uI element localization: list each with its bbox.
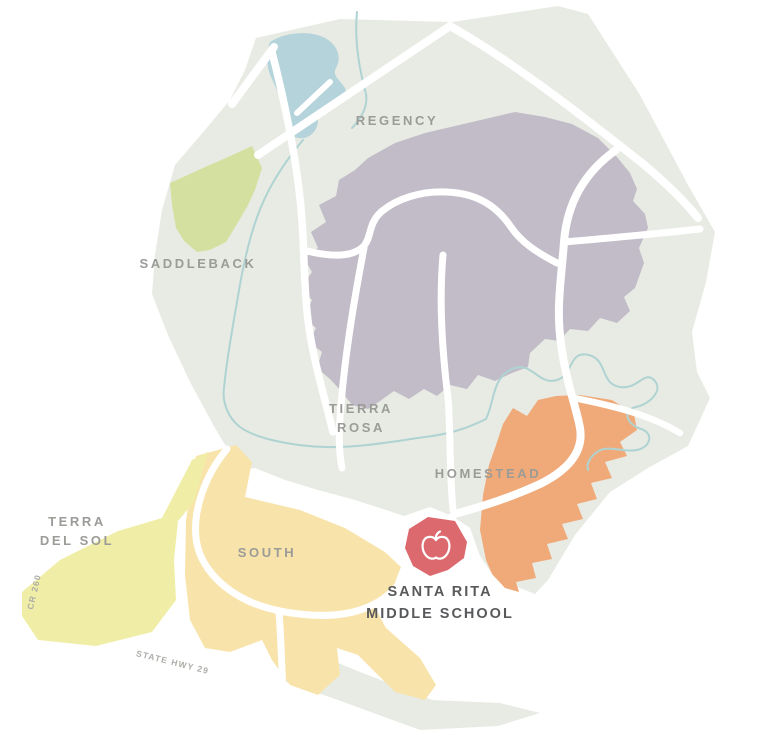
region-label-terra-del-sol-line1: TERRA: [48, 514, 106, 529]
region-label-regency: REGENCY: [356, 113, 439, 128]
region-label-terra-del-sol-line2: DEL SOL: [40, 533, 114, 548]
road-label-state-hwy-29: STATE HWY 29: [135, 648, 210, 676]
region-label-homestead: HOMESTEAD: [435, 466, 541, 481]
district-map-svg: REGENCY SADDLEBACK TIERRA ROSA HOMESTEAD…: [0, 0, 768, 738]
school-label-line1: SANTA RITA: [387, 584, 492, 600]
region-label-south: SOUTH: [238, 545, 297, 560]
school-zone-shape[interactable]: [405, 517, 467, 576]
school-attendance-map: REGENCY SADDLEBACK TIERRA ROSA HOMESTEAD…: [0, 0, 768, 738]
school-label-line2: MIDDLE SCHOOL: [366, 606, 514, 622]
school-zone-marker[interactable]: [405, 517, 467, 576]
road-path: [279, 611, 283, 696]
region-label-tierra-rosa-line2: ROSA: [337, 420, 385, 435]
region-label-tierra-rosa-line1: TIERRA: [329, 401, 393, 416]
region-label-saddleback: SADDLEBACK: [140, 256, 257, 271]
